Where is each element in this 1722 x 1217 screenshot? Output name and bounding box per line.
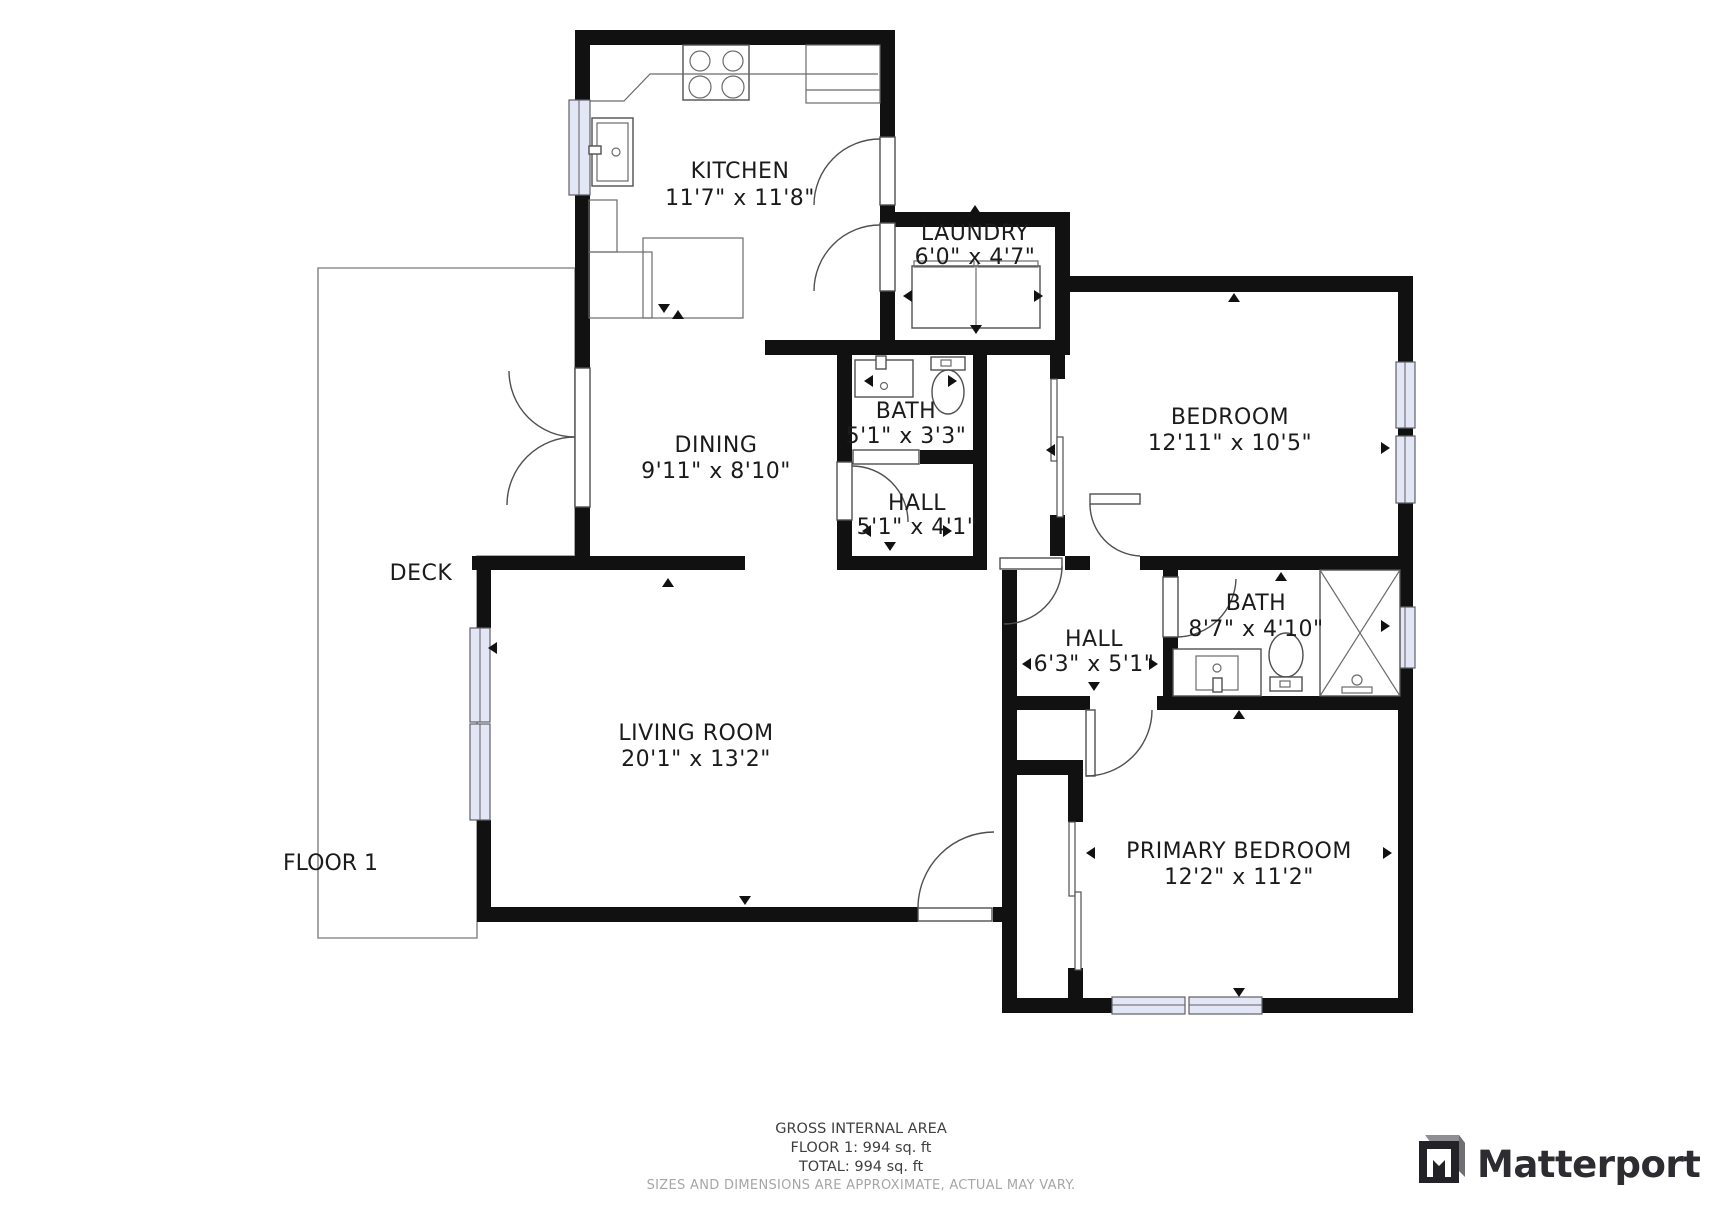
room-label-hall2: HALL <box>1065 627 1123 652</box>
matterport-logo: Matterport <box>1419 1135 1700 1186</box>
room-label-laundry: LAUNDRY <box>921 221 1029 246</box>
room-dims-laundry: 6'0" x 4'7" <box>915 245 1036 270</box>
deck-label: DECK <box>390 561 453 586</box>
room-dims-living: 20'1" x 13'2" <box>621 747 771 772</box>
washer-dryer-icon <box>912 261 1040 328</box>
measure-arrow <box>1086 847 1095 859</box>
measure-arrow <box>1275 572 1287 581</box>
measure-arrow <box>658 304 670 313</box>
room-label-bath2: BATH <box>1226 591 1286 616</box>
measure-arrow <box>903 290 912 302</box>
room-label-bedroom: BEDROOM <box>1171 405 1289 430</box>
primary-bedroom-door <box>1086 710 1152 776</box>
shower-icon <box>1320 570 1400 696</box>
room-dims-bath1: 5'1" x 3'3" <box>846 424 967 449</box>
measure-arrow <box>672 310 684 319</box>
floor-area-value: FLOOR 1: 994 sq. ft <box>791 1140 932 1156</box>
room-dims-bath2: 8'7" x 4'10" <box>1188 617 1323 642</box>
room-label-bath1: BATH <box>876 399 936 424</box>
total-area-value: TOTAL: 994 sq. ft <box>798 1159 924 1175</box>
entry-door <box>918 832 994 921</box>
measure-arrow <box>662 578 674 587</box>
deck-outline <box>318 268 575 938</box>
room-dims-kitchen: 11'7" x 11'8" <box>665 186 815 211</box>
laundry-door <box>814 223 895 291</box>
room-dims-primary: 12'2" x 11'2" <box>1164 865 1314 890</box>
kitchen-peninsula-icon <box>643 238 743 318</box>
vanity-sink-icon <box>1173 649 1261 696</box>
measure-arrow <box>1233 988 1245 997</box>
measure-arrow <box>1383 847 1392 859</box>
room-dims-dining: 9'11" x 8'10" <box>641 459 791 484</box>
stove-icon <box>683 45 749 100</box>
bathroom-sink-icon <box>855 356 913 397</box>
floorplan-page: KITCHEN 11'7" x 11'8" LAUNDRY 6'0" x 4'7… <box>0 0 1722 1217</box>
room-dims-bedroom: 12'11" x 10'5" <box>1148 431 1312 456</box>
deck-french-doors <box>507 368 590 507</box>
room-label-primary: PRIMARY BEDROOM <box>1126 839 1352 864</box>
living-room-window <box>470 628 490 820</box>
measure-arrow <box>1022 658 1031 670</box>
floorplan-canvas: KITCHEN 11'7" x 11'8" LAUNDRY 6'0" x 4'7… <box>0 0 1722 1217</box>
room-label-dining: DINING <box>675 433 758 458</box>
dimensions-disclaimer: SIZES AND DIMENSIONS ARE APPROXIMATE, AC… <box>647 1178 1076 1193</box>
measure-arrow <box>884 542 896 551</box>
matterport-logo-icon <box>1419 1135 1465 1183</box>
measure-arrow <box>1088 682 1100 691</box>
gross-internal-area-title: GROSS INTERNAL AREA <box>775 1121 947 1137</box>
dishwasher-icon <box>589 200 617 252</box>
bath-door <box>853 450 919 464</box>
room-dims-hall2: 6'3" x 5'1" <box>1034 652 1155 677</box>
measure-arrow <box>1228 293 1240 302</box>
measure-arrow <box>1233 710 1245 719</box>
kitchen-side-door <box>814 137 895 205</box>
measure-arrow <box>1381 442 1390 454</box>
measure-arrow <box>970 325 982 334</box>
area-summary: GROSS INTERNAL AREA FLOOR 1: 994 sq. ft … <box>647 1121 1076 1193</box>
kitchen-window <box>569 100 590 195</box>
matterport-logo-text: Matterport <box>1477 1143 1700 1186</box>
closet-slider-door <box>1069 822 1081 970</box>
measure-arrow <box>739 896 751 905</box>
measure-arrow <box>969 205 981 214</box>
room-dims-hall1: 5'1" x 4'1" <box>857 515 978 540</box>
kitchen-sink-icon <box>589 118 633 186</box>
room-label-hall1: HALL <box>888 491 946 516</box>
primary-bedroom-window <box>1112 997 1262 1014</box>
bedroom-door <box>1090 494 1140 556</box>
room-label-living: LIVING ROOM <box>618 721 773 746</box>
room-label-kitchen: KITCHEN <box>691 159 790 184</box>
floor-label: FLOOR 1 <box>283 851 378 876</box>
